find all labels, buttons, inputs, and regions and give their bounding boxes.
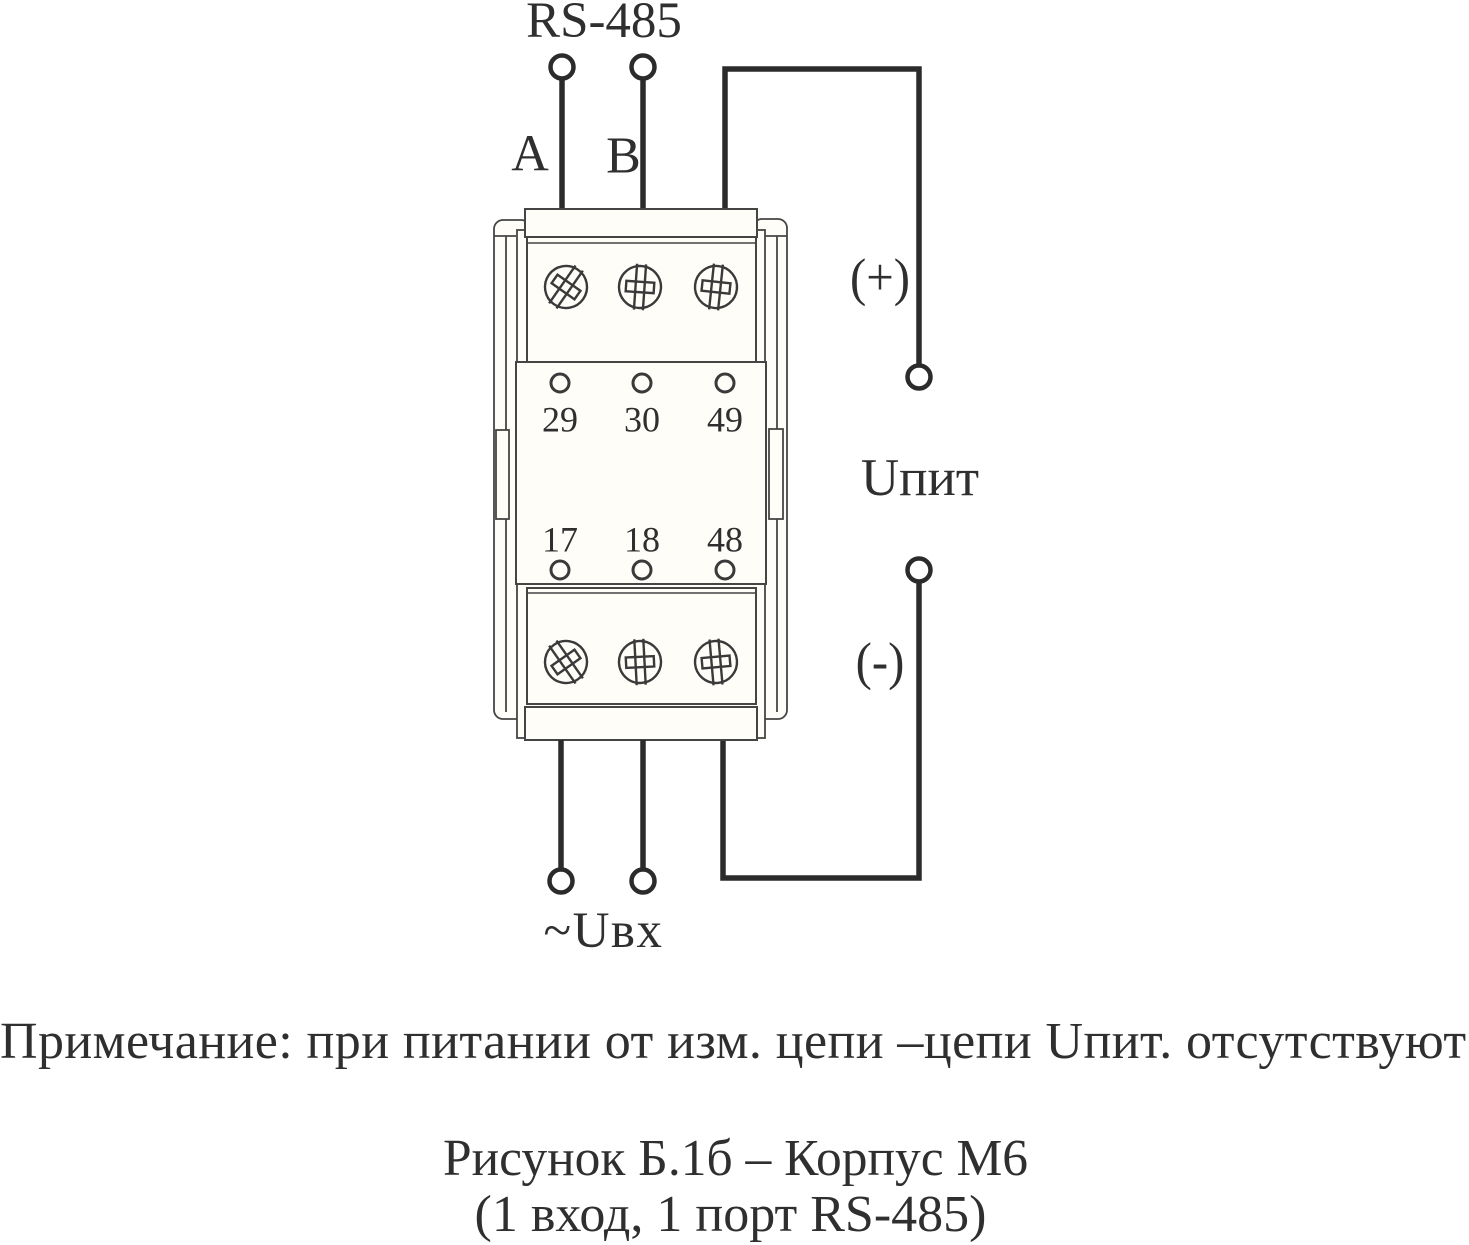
svg-text:48: 48 (707, 520, 743, 560)
svg-text:30: 30 (624, 400, 660, 440)
svg-text:A: A (511, 126, 549, 183)
svg-text:RS-485: RS-485 (526, 0, 682, 49)
svg-text:29: 29 (542, 400, 578, 440)
svg-text:Примечание: при питании от изм: Примечание: при питании от изм. цепи –це… (0, 1013, 1467, 1070)
svg-text:17: 17 (542, 520, 578, 560)
svg-text:(-): (-) (856, 633, 905, 691)
svg-text:(+): (+) (850, 249, 910, 307)
svg-text:Рисунок Б.1б – Корпус М6: Рисунок Б.1б – Корпус М6 (443, 1130, 1028, 1187)
svg-text:49: 49 (707, 400, 743, 440)
svg-text:18: 18 (624, 520, 660, 560)
svg-text:Uпит: Uпит (861, 449, 979, 507)
svg-text:B: B (606, 128, 641, 185)
svg-text:(1 вход, 1 порт RS-485): (1 вход, 1 порт RS-485) (475, 1186, 987, 1243)
svg-text:~Uвх: ~Uвх (543, 903, 663, 959)
